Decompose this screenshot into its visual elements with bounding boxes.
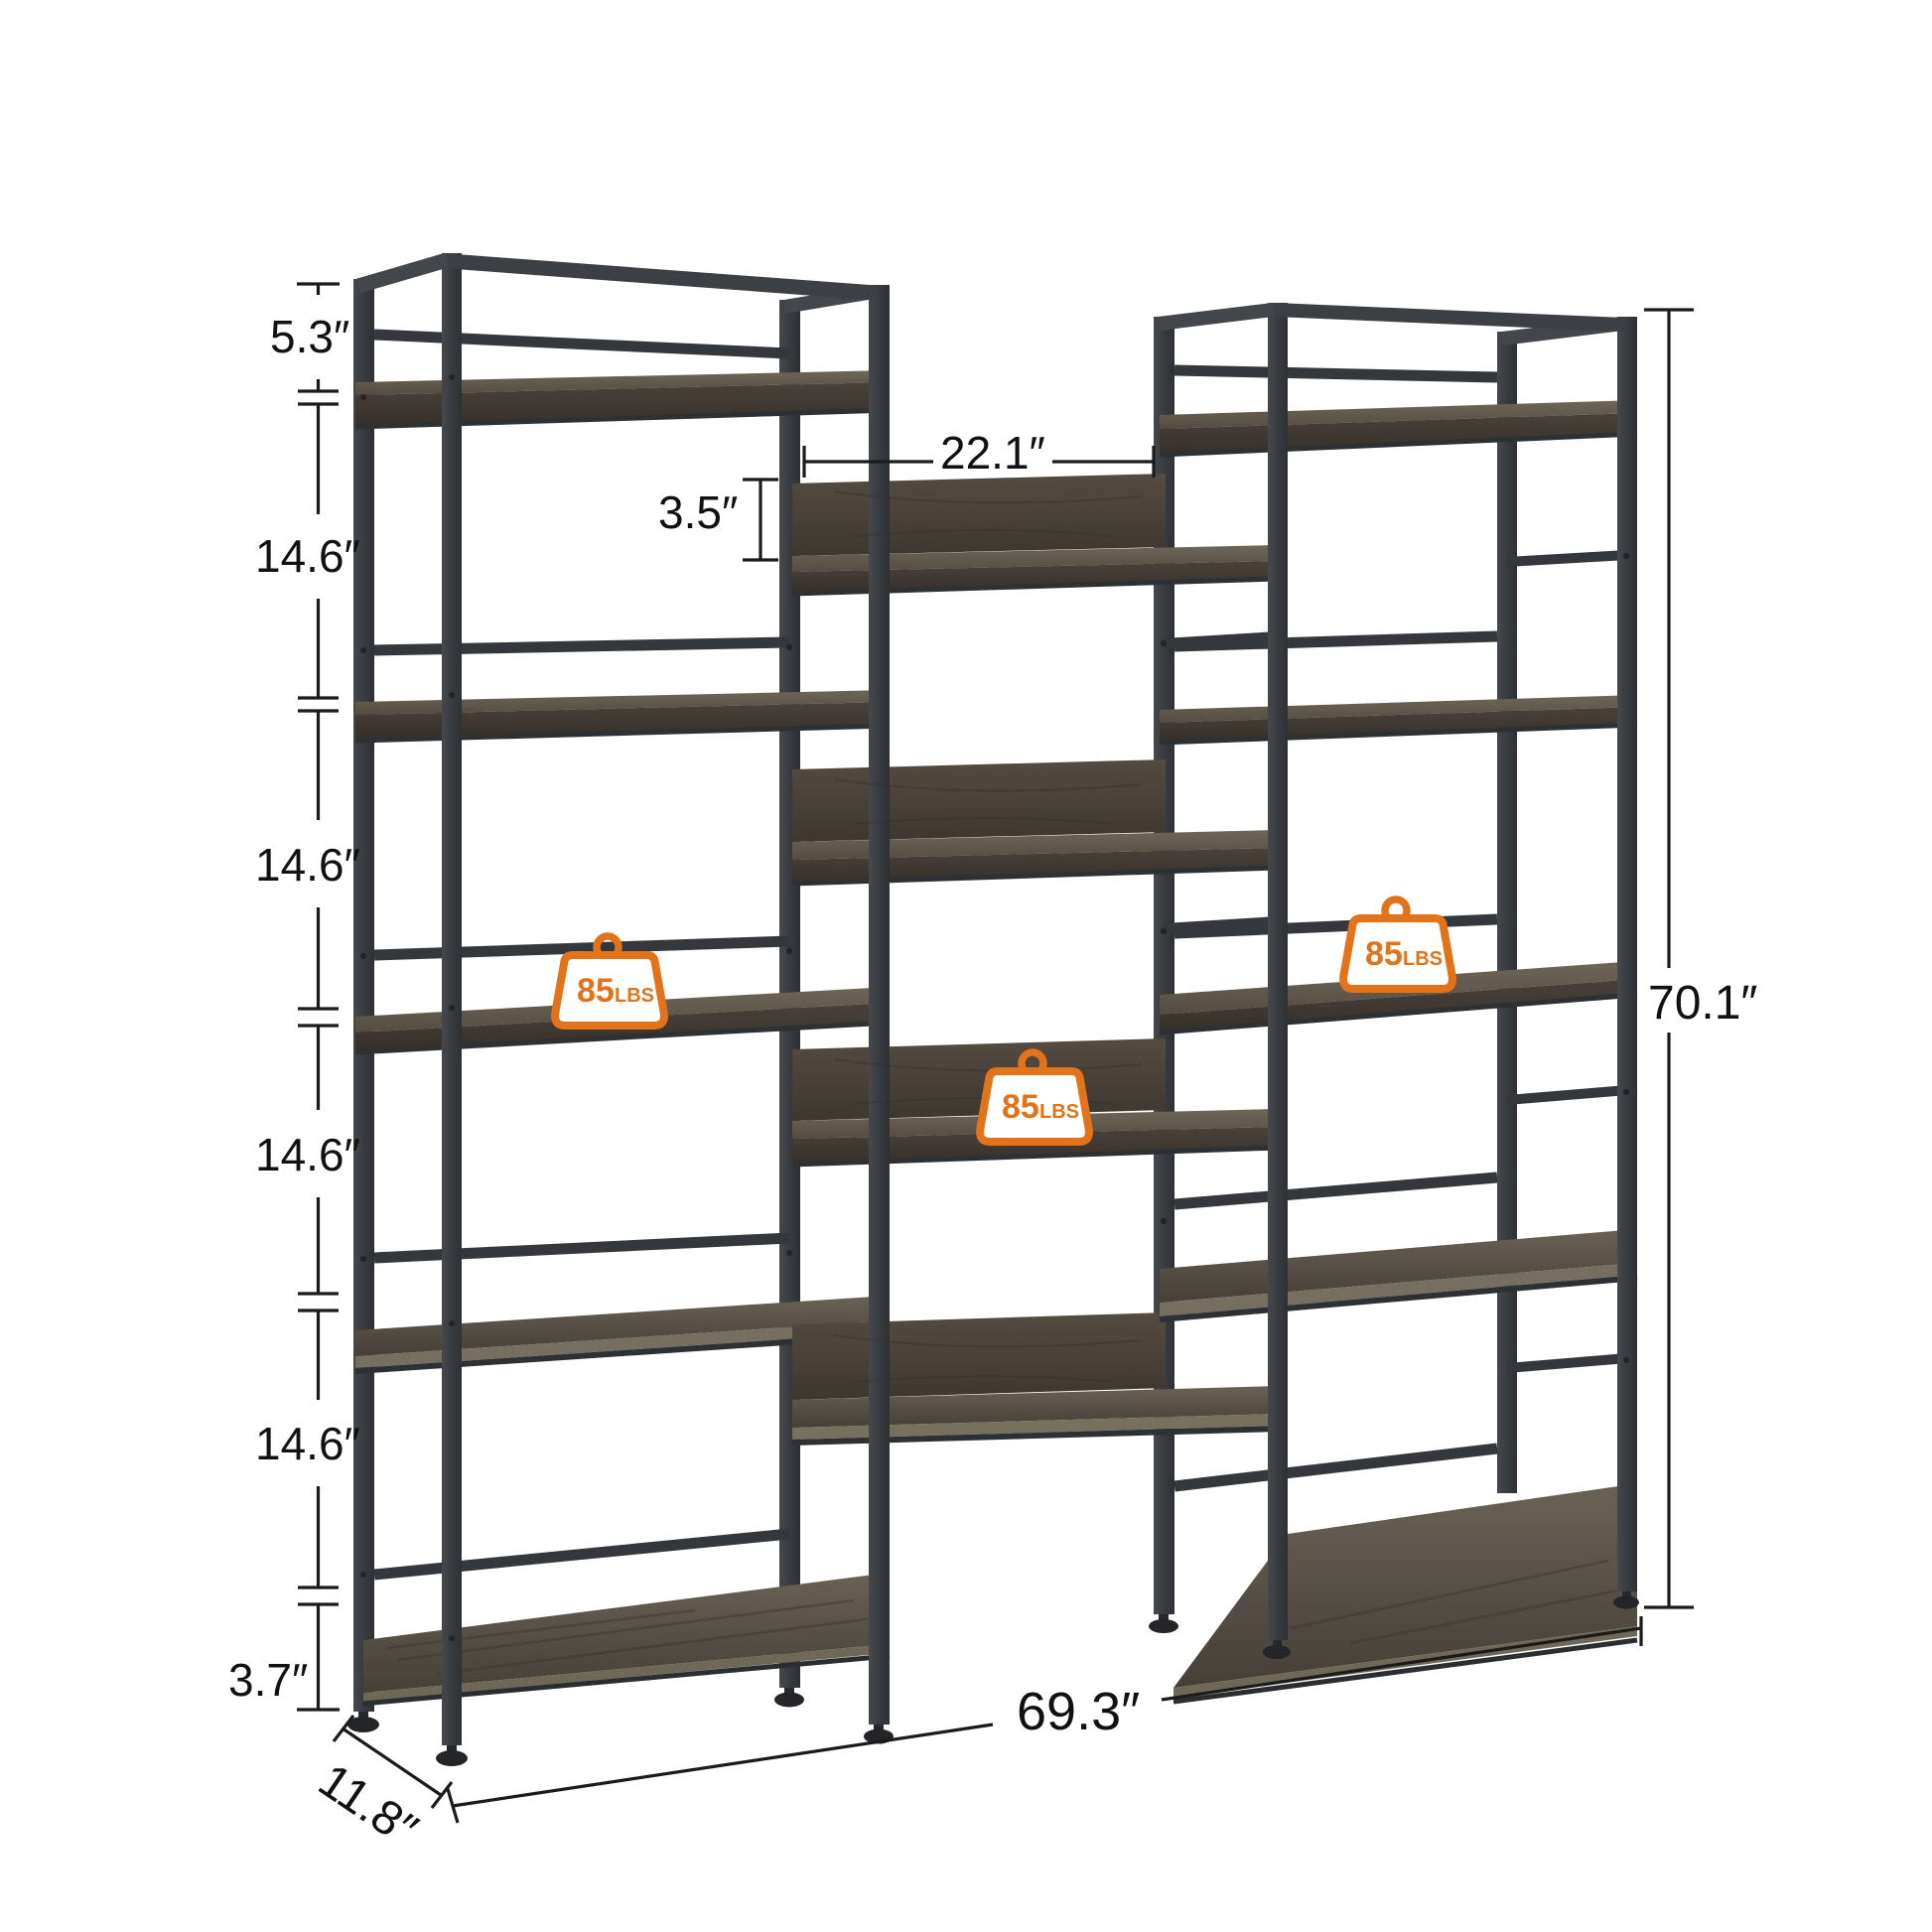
svg-text:14.6″: 14.6″ [255, 530, 360, 582]
svg-text:5.3″: 5.3″ [270, 311, 349, 362]
svg-text:85: 85 [1365, 935, 1403, 973]
svg-text:22.1″: 22.1″ [940, 427, 1045, 479]
svg-text:3.5″: 3.5″ [658, 486, 738, 538]
svg-text:85: 85 [1002, 1088, 1039, 1126]
svg-text:69.3″: 69.3″ [1017, 1682, 1140, 1741]
svg-text:LBS: LBS [1403, 948, 1443, 970]
svg-text:LBS: LBS [615, 985, 654, 1007]
svg-text:70.1″: 70.1″ [1648, 977, 1757, 1030]
svg-text:3.7″: 3.7″ [228, 1654, 308, 1706]
svg-text:85: 85 [577, 972, 615, 1010]
svg-text:14.6″: 14.6″ [255, 1129, 360, 1180]
svg-text:14.6″: 14.6″ [255, 1418, 360, 1469]
svg-text:14.6″: 14.6″ [255, 839, 360, 891]
svg-text:LBS: LBS [1039, 1101, 1079, 1123]
